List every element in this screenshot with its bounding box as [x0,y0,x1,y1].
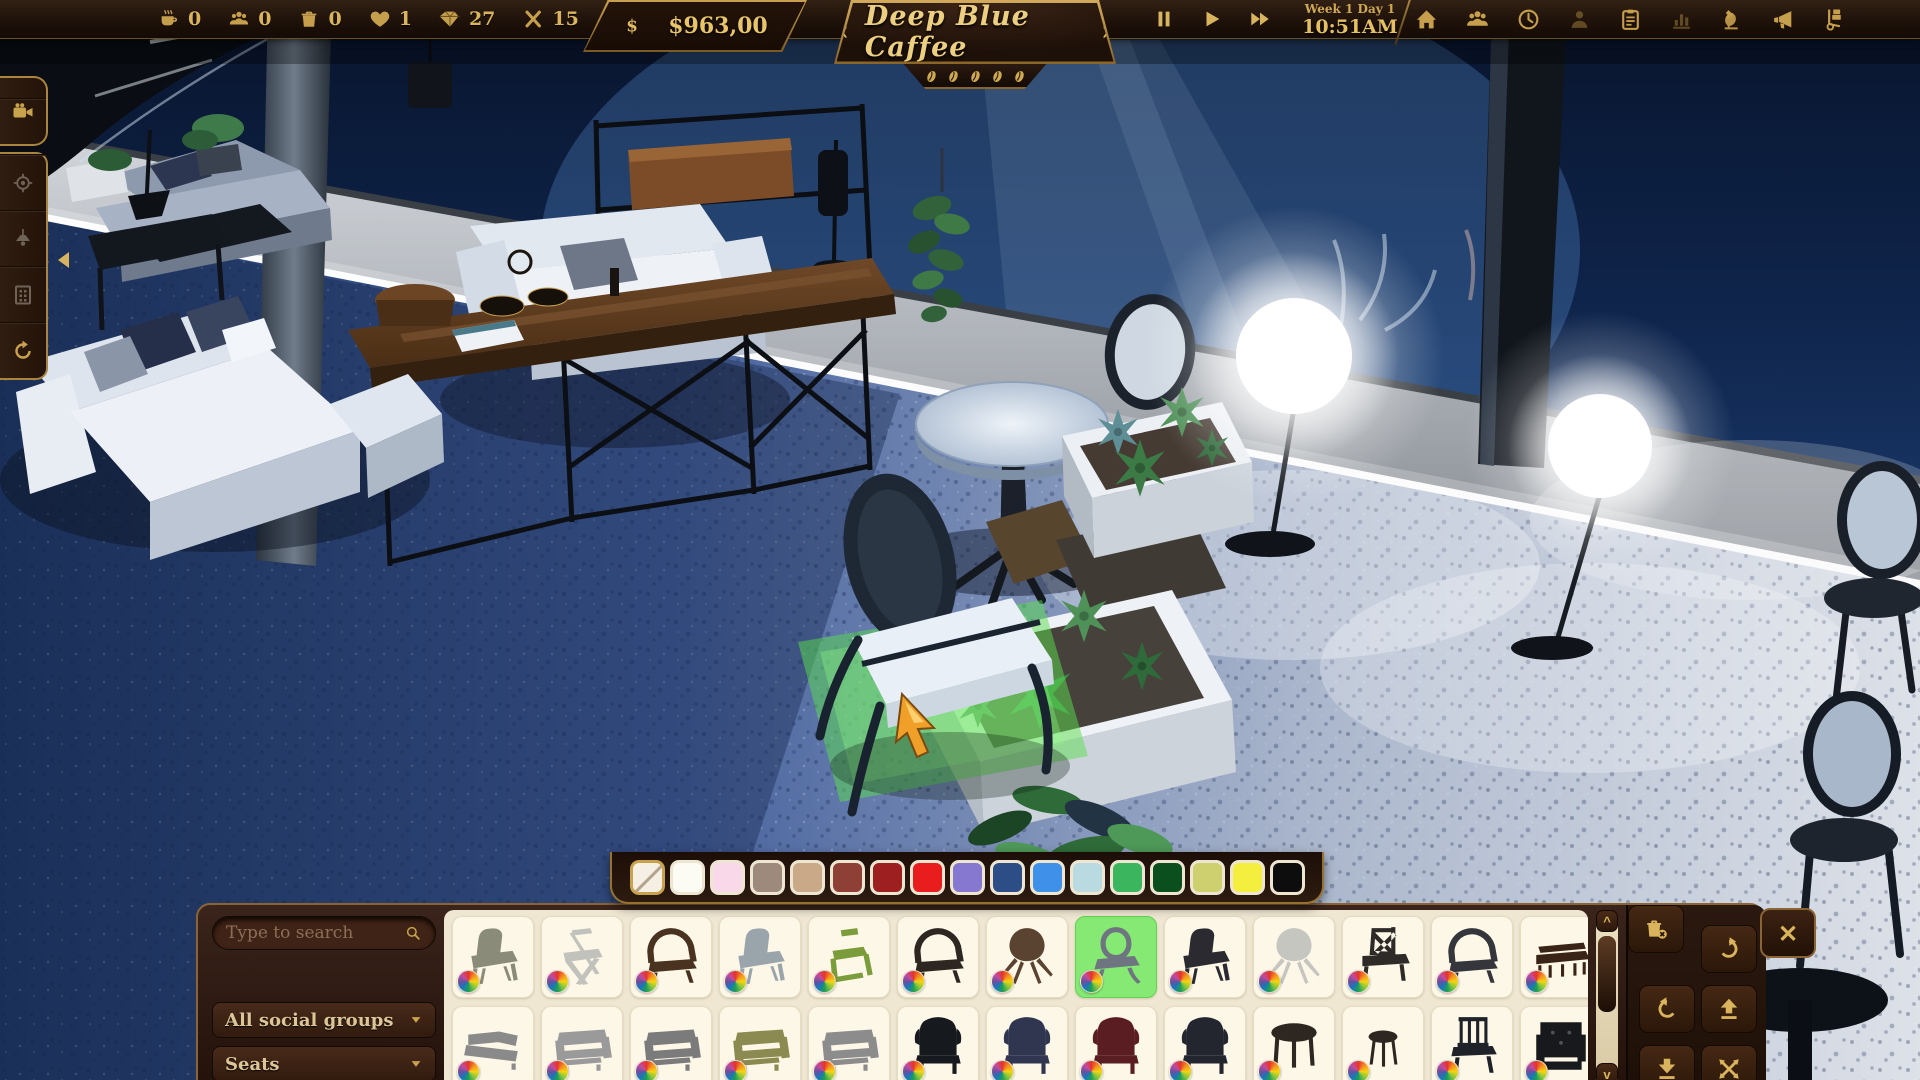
item-wingback-chair-dark[interactable] [1164,1006,1246,1080]
furniture-grid [444,910,1588,1080]
color-wheel-icon[interactable] [1258,1060,1281,1080]
action-[interactable] [1639,1045,1695,1080]
time-control-icon [1249,8,1271,30]
item-wingback-chair-pattern[interactable] [986,1006,1068,1080]
grid-scrollbar[interactable]: ^ v [1596,910,1618,1080]
color-wheel-icon[interactable] [457,1060,480,1080]
color-wheel-icon[interactable] [457,970,480,993]
item-side-chair-gray[interactable] [719,916,801,998]
stat-value: 0 [328,8,341,30]
item-mesh-armchair-black[interactable] [1431,916,1513,998]
item-captain-armchair-wood[interactable] [630,916,712,998]
action-icon [1643,916,1669,942]
build-panel: Type to search All social groups Seats [196,903,1764,1080]
action-icon [1716,1056,1742,1080]
item-sofa-light-gray[interactable] [541,1006,623,1080]
time-controls [1148,0,1276,38]
play[interactable] [1196,4,1228,34]
item-slat-chair-black[interactable] [1431,1006,1513,1080]
swatch-#f6f0e4[interactable] [630,860,665,895]
stat-icon [298,8,320,30]
fast-forward[interactable] [1244,4,1276,34]
toolbar-collapse-arrow[interactable] [50,252,69,268]
item-sofa-gray[interactable] [630,1006,712,1080]
menu-research[interactable] [1718,4,1748,34]
search-placeholder: Type to search [226,923,404,943]
color-wheel-icon[interactable] [546,970,569,993]
menu-marketing[interactable] [1769,4,1799,34]
pause[interactable] [1148,4,1180,34]
menu-icon [1414,7,1439,32]
color-wheel-icon[interactable] [1525,1060,1548,1080]
tool-camera[interactable] [0,98,46,125]
stat-trash: 0 [298,8,341,30]
stat-value: 0 [258,8,271,30]
stat-value: 0 [188,8,201,30]
swatch-#ced06f[interactable] [1190,860,1225,895]
color-wheel-icon[interactable] [991,970,1014,993]
close-build-panel-button[interactable]: ✕ [1760,908,1816,958]
item-tufted-armchair-black[interactable] [1520,1006,1588,1080]
color-wheel-icon[interactable] [1258,970,1281,993]
color-wheel-icon[interactable] [902,1060,925,1080]
menu-clock-menu[interactable] [1514,4,1544,34]
item-shell-chair-white[interactable] [1253,916,1335,998]
menu-icon [1822,7,1847,32]
tool-walls[interactable] [0,266,46,322]
search-icon [404,924,422,942]
swatch-#9d1f1f[interactable] [870,860,905,895]
item-sofa-olive[interactable] [719,1006,801,1080]
stat-icon [369,8,391,30]
swatch-#0c4f1e[interactable] [1150,860,1185,895]
wood-stool[interactable] [375,284,455,326]
category-filter[interactable]: Seats [212,1046,436,1080]
menu-home[interactable] [1412,4,1442,34]
swatch-#f4ef3e[interactable] [1230,860,1265,895]
menu-tasks[interactable] [1616,4,1646,34]
swatch-#2d4d87[interactable] [990,860,1025,895]
action-[interactable] [1628,905,1684,953]
tool-icon [11,283,35,307]
coffee-bean-icon [990,69,1005,84]
scrollbar-thumb[interactable] [1598,936,1616,1012]
swatch-#8e4036[interactable] [830,860,865,895]
stat-icon [522,8,544,30]
no-color-slash [634,861,665,892]
color-wheel-icon[interactable] [1080,970,1103,993]
money-amount: $963,00 [668,13,768,39]
item-bench-dark-wood[interactable] [1520,916,1588,998]
color-wheel-icon[interactable] [1169,1060,1192,1080]
color-wheel-icon[interactable] [902,970,925,993]
item-sofa-gray-2[interactable] [808,1006,890,1080]
action-icon [1654,1056,1680,1080]
view-toolbar [0,152,48,380]
date-label: Week 1 Day 1 [1300,2,1400,16]
stat-icon [158,8,180,30]
tool-ceiling-lamp[interactable] [0,210,46,266]
color-wheel-icon[interactable] [1080,1060,1103,1080]
coffee-bean-icon [968,69,983,84]
time-control-icon [1201,8,1223,30]
stat-likes: 1 [369,8,412,30]
item-cross-back-chair-black[interactable] [1342,916,1424,998]
swatch-#f9d9e9[interactable] [710,860,745,895]
coffee-bean-icon [946,69,961,84]
menu-icon [1720,7,1745,32]
swatch-#3f90e9[interactable] [1030,860,1065,895]
scroll-up-button[interactable]: ^ [1596,910,1618,932]
coffee-bean-icon [1012,69,1027,84]
chevron-down-icon [409,1013,423,1027]
game-window: $ [0,0,1920,1080]
camera-toolbar [0,76,48,146]
item-round-table-dark[interactable] [1253,1006,1335,1080]
time-control-icon [1153,8,1175,30]
stat-value: 1 [399,8,412,30]
money-display: $963,00 [583,0,807,52]
color-wheel-icon[interactable] [724,1060,747,1080]
color-wheel-icon[interactable] [635,1060,658,1080]
main-menu [1412,0,1850,38]
menu-icon [1618,7,1643,32]
furniture-row-1 [452,916,1588,998]
close-icon: ✕ [1778,919,1798,948]
item-wingback-chair-black[interactable] [897,1006,979,1080]
coffee-bean-icon [924,69,939,84]
item-folding-chair-white[interactable] [541,916,623,998]
scroll-down-button[interactable]: v [1596,1063,1618,1080]
color-palette-bar [610,852,1324,904]
color-wheel-icon[interactable] [1436,1060,1459,1080]
item-side-chair-olive[interactable] [452,916,534,998]
color-wheel-icon[interactable] [635,970,658,993]
stat-value: 15 [552,8,578,30]
color-wheel-icon[interactable] [1347,1060,1370,1080]
item-wingback-chair-red[interactable] [1075,1006,1157,1080]
swatch-#fdfcf4[interactable] [670,860,705,895]
filter-label: All social groups [225,1010,394,1031]
menu-statistics[interactable] [1667,4,1697,34]
search-input[interactable]: Type to search [212,916,436,950]
color-wheel-icon[interactable] [724,970,747,993]
stat-value: 27 [469,8,495,30]
item-round-back-chair-dark[interactable] [897,916,979,998]
color-wheel-icon[interactable] [546,1060,569,1080]
social-group-filter[interactable]: All social groups [212,1002,436,1038]
item-stacking-chair-green[interactable] [808,916,890,998]
stat-icon [439,8,461,30]
menu-icon [1465,7,1490,32]
tool-focus[interactable] [0,154,46,210]
color-wheel-icon[interactable] [1169,970,1192,993]
tool-icon [11,227,35,251]
menu-delivery[interactable] [1820,4,1850,34]
action-icon [1716,936,1742,962]
swatch-#8678d0[interactable] [950,860,985,895]
object-actions-panel [1626,905,1766,1080]
action-[interactable] [1701,985,1757,1033]
color-wheel-icon[interactable] [1347,970,1370,993]
chevron-down-icon [409,1057,423,1071]
tool-icon [11,339,35,363]
item-medallion-chair-gray[interactable] [1075,916,1157,998]
swatch-#0d0d0d[interactable] [1270,860,1305,895]
stat-diamonds: 27 [439,8,495,30]
clock-label: 10:51AM [1300,16,1400,38]
color-wheel-icon[interactable] [1525,970,1548,993]
color-wheel-icon[interactable] [991,1060,1014,1080]
furniture-row-2 [452,1006,1588,1080]
menu-staff[interactable] [1463,4,1493,34]
swatch-#3cb55f[interactable] [1110,860,1145,895]
color-wheel-icon[interactable] [1436,970,1459,993]
swatch-#b8dae0[interactable] [1070,860,1105,895]
color-wheel-icon[interactable] [813,1060,836,1080]
dollar-icon [622,16,642,36]
swatch-#e91d1d[interactable] [910,860,945,895]
action-[interactable] [1701,1045,1757,1080]
filter-label: Seats [225,1054,280,1075]
item-corner-sofa-gray[interactable] [452,1006,534,1080]
stat-coffees: 0 [158,8,201,30]
stat-multiplier: 15 [522,8,578,30]
swatch-#c9a987[interactable] [790,860,825,895]
tool-icon [11,100,35,124]
menu-icon [1567,7,1592,32]
item-bistro-chair-black[interactable] [1164,916,1246,998]
cafe-title-plaque: ‹ Deep Blue Caffee › [834,0,1116,64]
menu-icon [1669,7,1694,32]
datetime-display: Week 1 Day 1 10:51AM [1300,2,1400,38]
menu-icon [1516,7,1541,32]
menu-customer[interactable] [1565,4,1595,34]
stat-icon [228,8,250,30]
stats-group: 0 0 0 1 27 15 [158,0,579,38]
color-wheel-icon[interactable] [813,970,836,993]
cafe-name: Deep Blue Caffee [865,1,1085,63]
action-[interactable] [1701,925,1757,973]
action-icon [1654,996,1680,1022]
action-[interactable] [1639,985,1695,1033]
item-shell-chair-brown[interactable] [986,916,1068,998]
action-icon [1716,996,1742,1022]
swatch-#9d8a7d[interactable] [750,860,785,895]
menu-icon [1771,7,1796,32]
item-side-table-dark[interactable] [1342,1006,1424,1080]
tool-rotate-camera[interactable] [0,322,46,378]
tool-icon [11,171,35,195]
stat-customers: 0 [228,8,271,30]
